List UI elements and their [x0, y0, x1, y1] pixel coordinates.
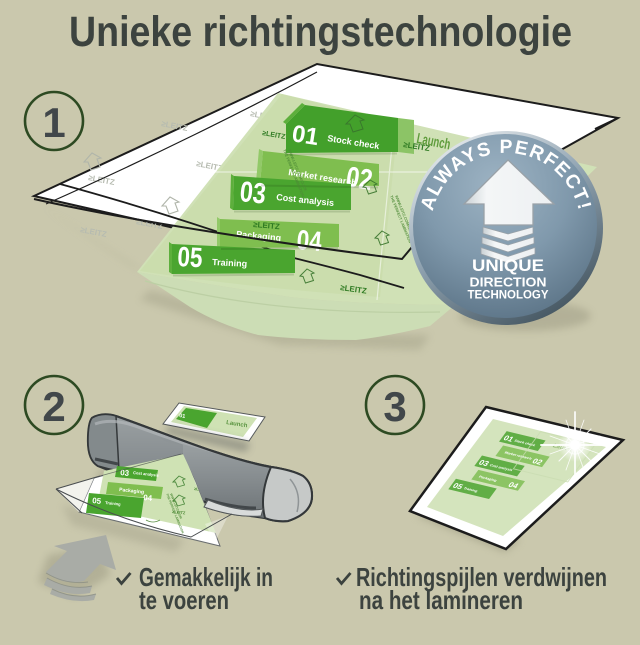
svg-text:04: 04 [295, 224, 323, 257]
svg-text:Training: Training [212, 257, 247, 269]
svg-text:na het lamineren: na het lamineren [359, 585, 523, 615]
svg-text:te voeren: te voeren [139, 585, 229, 615]
svg-text:3: 3 [383, 383, 406, 430]
svg-text:04: 04 [143, 493, 153, 503]
svg-text:05: 05 [92, 496, 102, 506]
svg-text:UNIQUE: UNIQUE [472, 257, 544, 275]
svg-text:01: 01 [179, 413, 186, 420]
svg-text:03: 03 [238, 176, 267, 211]
svg-text:05: 05 [177, 241, 204, 273]
svg-text:Unieke richtingstechnologie: Unieke richtingstechnologie [69, 8, 572, 56]
svg-text:DIRECTION: DIRECTION [470, 275, 547, 290]
svg-text:2: 2 [42, 383, 65, 430]
svg-text:1: 1 [42, 99, 65, 146]
svg-text:TECHNOLOGY: TECHNOLOGY [468, 290, 549, 302]
svg-text:01: 01 [290, 120, 321, 151]
